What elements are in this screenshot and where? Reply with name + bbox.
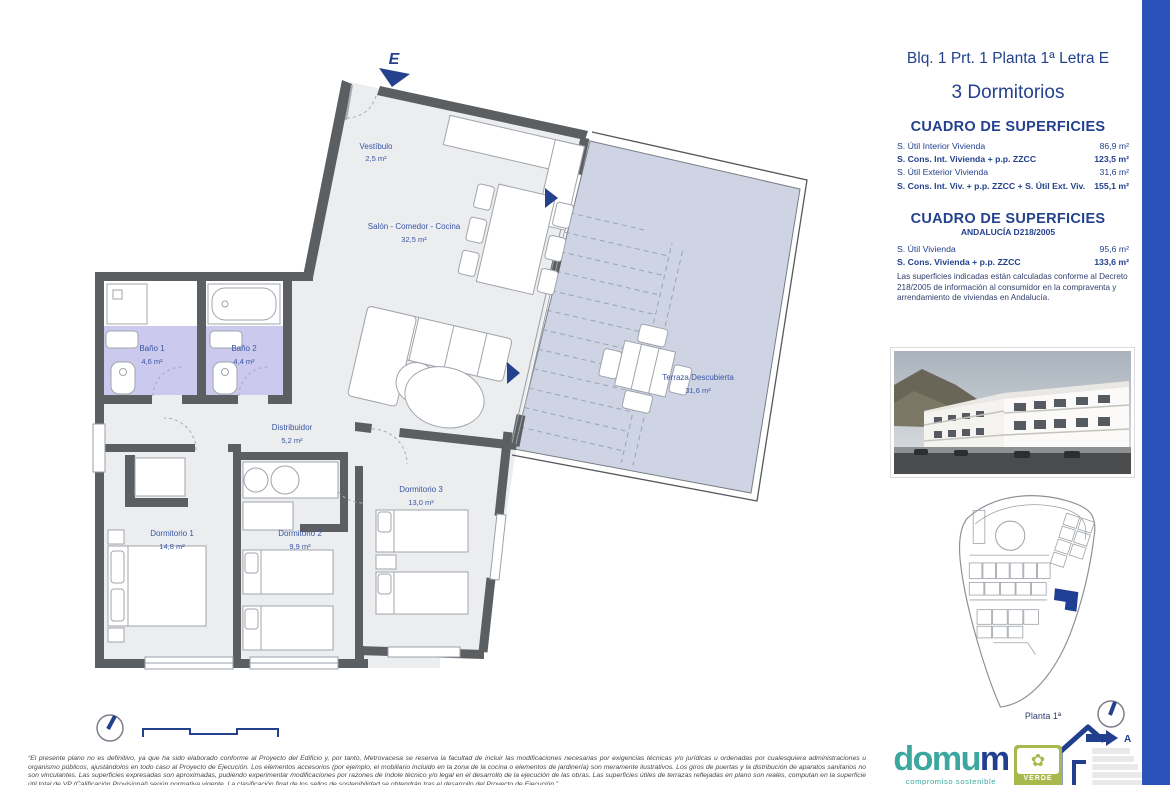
table-row: S. Útil Interior Vivienda86,9 m² [897,140,1129,153]
decree-note: Las superficies indicadas están calculad… [897,272,1133,304]
building-render-image [890,347,1135,478]
domum-tagline: compromiso sostenible [890,778,1012,785]
compass-icon [97,715,123,741]
room-label-dorm2: Dormitorio 2 [278,529,322,538]
energy-rating-letter: A [1124,734,1131,745]
room-label-vestibulo: Vestíbulo [360,142,393,151]
surfaces-andalucia-subtitle: ANDALUCÍA D218/2005 [880,227,1136,237]
domum-logo: domum compromiso sostenible [890,742,1012,785]
entrance-label: E [389,51,401,68]
room-label-bano2: Baño 2 [231,344,257,353]
site-plan [935,487,1135,709]
svg-text:4,4 m²: 4,4 m² [233,357,255,366]
energy-rating-icon: A [1050,722,1142,785]
svg-text:31,6 m²: 31,6 m² [685,386,711,395]
room-label-salon: Salón - Comedor - Cocina [368,222,461,231]
scale-bar [143,729,278,737]
svg-text:2,5 m²: 2,5 m² [365,154,387,163]
svg-text:13,0 m²: 13,0 m² [408,498,434,507]
site-plan-caption: Planta 1ª [978,711,1108,721]
unit-identifier: Blq. 1 Prt. 1 Planta 1ª Letra E [880,50,1136,68]
plan-sheet-page: E Vestíbulo 2,5 m² Salón - Comedor - Coc… [0,0,1170,785]
surfaces-andalucia-table: S. Útil Vivienda95,6 m² S. Cons. Viviend… [897,243,1129,269]
domum-logo-text: domu [893,740,980,778]
legal-disclaimer: “El presente plano no es definitivo, ya … [28,755,866,785]
floor-plan-drawing: E Vestíbulo 2,5 m² Salón - Comedor - Coc… [0,0,880,785]
table-row: S. Útil Exterior Vivienda31,6 m² [897,166,1129,179]
room-label-dorm3: Dormitorio 3 [399,485,443,494]
table-row: S. Cons. Int. Vivienda + p.p. ZZCC123,5 … [897,153,1129,166]
svg-text:4,6 m²: 4,6 m² [141,357,163,366]
verde-certificate-logo: ✿ VERDE [1014,745,1062,785]
svg-text:32,5 m²: 32,5 m² [401,235,427,244]
room-label-terraza: Terraza Descubierta [662,373,734,382]
svg-text:9,9 m²: 9,9 m² [289,542,311,551]
room-label-distribuidor: Distribuidor [272,423,313,432]
svg-text:5,2 m²: 5,2 m² [281,436,303,445]
surfaces-table-title: CUADRO DE SUPERFICIES [880,119,1136,135]
surfaces-table: S. Útil Interior Vivienda86,9 m² S. Cons… [897,140,1129,193]
svg-text:14,8 m²: 14,8 m² [159,542,185,551]
room-label-dorm1: Dormitorio 1 [150,529,194,538]
surfaces-andalucia-title: CUADRO DE SUPERFICIES [880,211,1136,227]
building-render-graphic [894,351,1131,474]
royal-blue-sidebar [1142,0,1170,785]
verde-leaf-icon: ✿ [1017,748,1059,774]
table-row: S. Cons. Int. Viv. + p.p. ZZCC + S. Útil… [897,180,1129,193]
bedrooms-count-title: 3 Dormitorios [880,82,1136,104]
table-row: S. Cons. Vivienda + p.p. ZZCC133,6 m² [897,256,1129,269]
room-label-bano1: Baño 1 [139,344,165,353]
table-row: S. Útil Vivienda95,6 m² [897,243,1129,256]
